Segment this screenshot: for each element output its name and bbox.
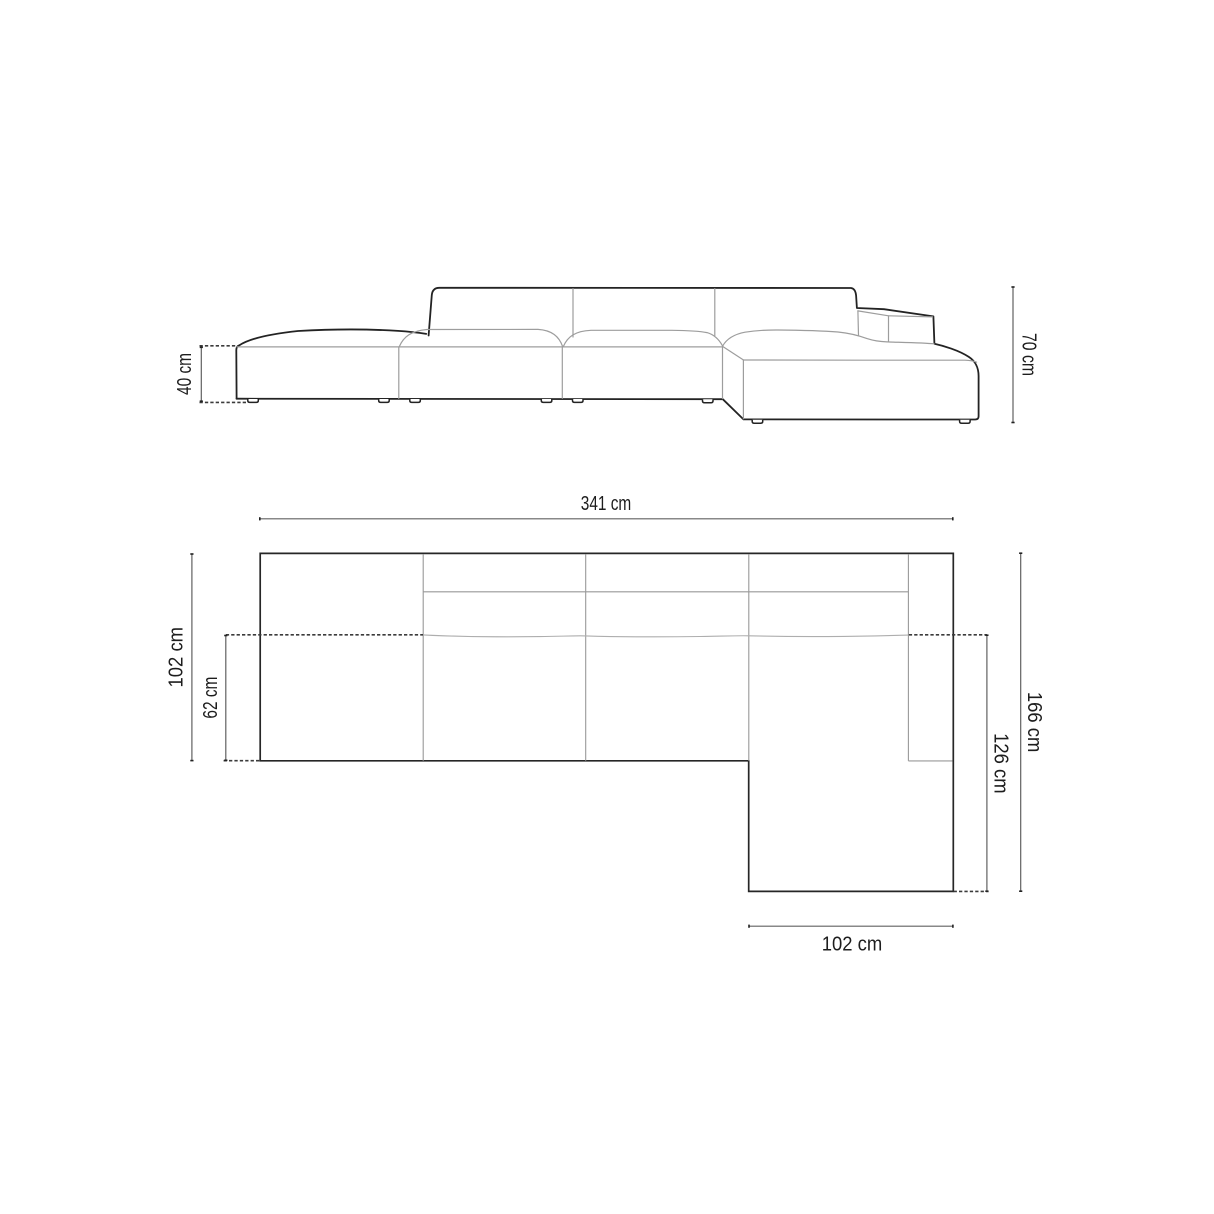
svg-text:341 cm: 341 cm [581, 492, 632, 515]
svg-text:126 cm: 126 cm [989, 733, 1012, 794]
svg-text:102 cm: 102 cm [165, 627, 188, 688]
svg-text:166 cm: 166 cm [1023, 692, 1046, 753]
svg-text:102 cm: 102 cm [822, 933, 883, 956]
svg-text:40 cm: 40 cm [173, 353, 196, 395]
svg-text:62 cm: 62 cm [199, 677, 222, 719]
svg-text:70 cm: 70 cm [1018, 333, 1041, 376]
